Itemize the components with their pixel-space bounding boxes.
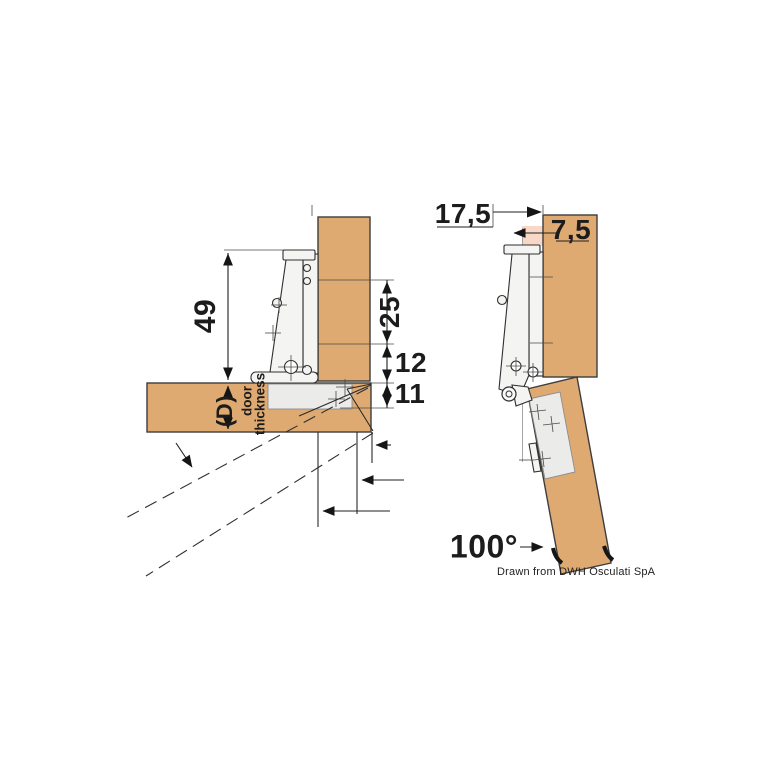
thickness-word-label: thickness [253,373,268,435]
open-door-face-dashed [146,433,373,576]
hinge-arm-cap [504,245,540,254]
dim-label-7-5: 7,5 [551,214,591,246]
mounting-plate [529,252,543,376]
cabinet-panel-section [318,217,370,381]
hinge-arm-cap [283,250,315,260]
hinge-arm [499,254,529,396]
dim-label-17-5: 17,5 [435,198,492,230]
dim-label-49: 49 [189,299,223,333]
reveal-highlight [522,226,543,246]
arm-boss [498,296,507,305]
plate-detail [304,278,311,285]
dim-label-11: 11 [395,378,426,410]
right-view-open-section [437,204,613,574]
dim-label-25: 25 [374,296,406,328]
dim-label-12: 12 [395,347,427,379]
credit-line: Drawn from DWH Osculati SpA [497,566,655,578]
plate-detail [304,265,311,272]
swing-direction-arrow [176,443,192,467]
hinge-arm [270,260,303,372]
reference-pointers [318,432,404,527]
hinge-technical-drawing [0,0,768,768]
opening-angle-label: 100° [450,529,518,566]
arm-boss [273,299,282,308]
hinge-cup-recess [268,384,352,409]
pivot-pin [502,387,516,401]
door-thickness-symbol: (D) [212,395,238,427]
mounting-plate [303,254,318,373]
